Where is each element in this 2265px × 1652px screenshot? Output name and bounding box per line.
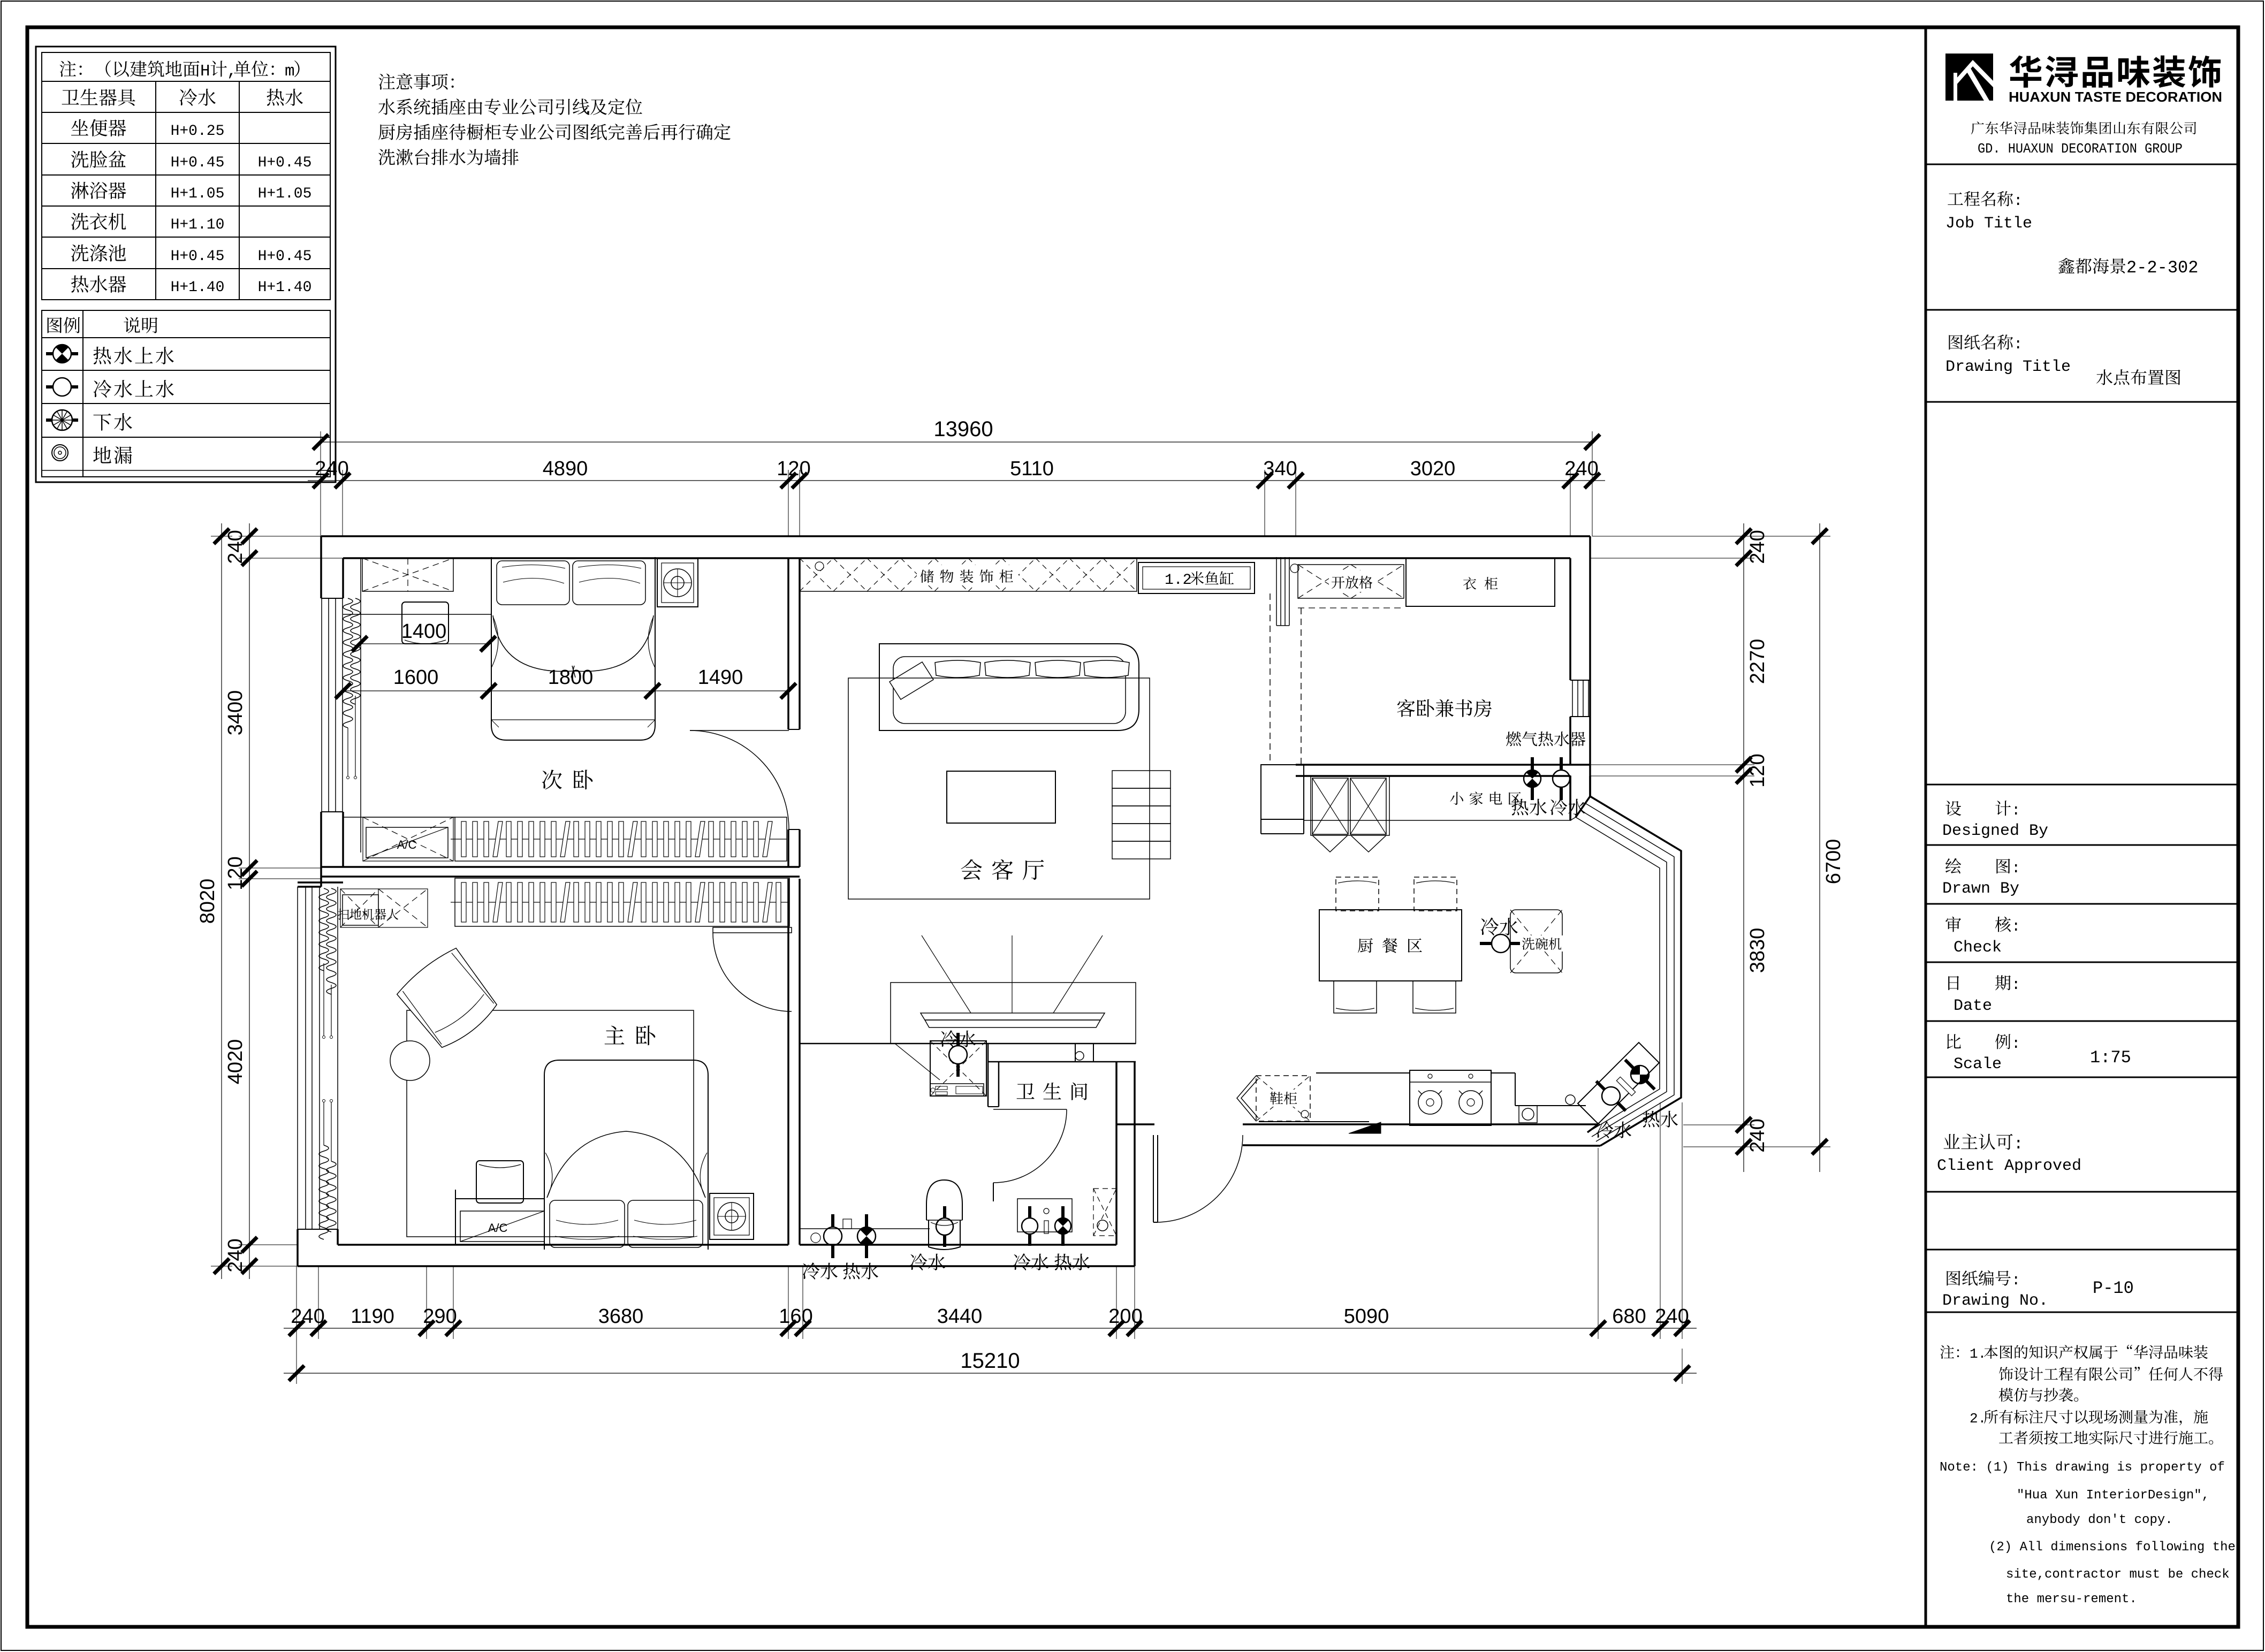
svg-text:H+0.45: H+0.45 [171,155,225,171]
svg-text:Scale: Scale [1954,1055,2002,1074]
svg-text:160: 160 [779,1305,812,1328]
svg-text:Client Approved: Client Approved [1937,1157,2081,1175]
svg-text:site,contractor must be check: site,contractor must be check [2006,1567,2230,1582]
svg-text:H+0.45: H+0.45 [258,155,312,171]
svg-text:2270: 2270 [1746,639,1769,684]
svg-text:3020: 3020 [1410,458,1456,480]
svg-text:"Hua Xun InteriorDesign",: "Hua Xun InteriorDesign", [2017,1488,2209,1503]
svg-text:1800: 1800 [548,666,594,689]
svg-text:1:75: 1:75 [2090,1048,2131,1068]
svg-text:5110: 5110 [1010,458,1054,480]
svg-text:H+0.25: H+0.25 [171,123,225,140]
svg-text:.: . [652,126,662,144]
svg-text::: : [2011,1272,2020,1289]
svg-text:Job Title: Job Title [1945,215,2032,233]
svg-text::: : [2011,859,2020,877]
svg-text:1400: 1400 [401,620,447,643]
svg-text:4020: 4020 [224,1039,247,1085]
svg-text:240: 240 [224,530,247,564]
svg-text:120: 120 [1746,753,1769,787]
svg-text:A/C: A/C [488,1221,508,1235]
svg-text::: : [2011,802,2020,819]
svg-text:15210: 15210 [960,1349,1020,1373]
svg-text:1490: 1490 [698,666,743,689]
svg-text:GD. HUAXUN DECORATION GROUP: GD. HUAXUN DECORATION GROUP [1978,141,2183,157]
svg-text:6700: 6700 [1822,839,1845,885]
svg-text:1.2: 1.2 [1165,572,1191,589]
svg-text::: : [2013,336,2023,353]
svg-text:1190: 1190 [351,1305,394,1328]
svg-text:HUAXUN TASTE DECORATION: HUAXUN TASTE DECORATION [2009,89,2222,105]
svg-text:P-10: P-10 [2093,1278,2134,1298]
svg-text:3440: 3440 [937,1305,983,1328]
svg-text::: : [2013,192,2023,210]
svg-text:5090: 5090 [1344,1305,1389,1328]
svg-text:H+1.40: H+1.40 [258,279,312,296]
svg-text:Note: (1) This drawing is pro: Note: (1) This drawing is property of [1940,1460,2225,1475]
svg-text:H+0.45: H+0.45 [171,248,225,265]
svg-text:240: 240 [291,1305,324,1328]
svg-text:240: 240 [1564,458,1598,480]
svg-text:,: , [227,62,237,81]
svg-text:anybody don't copy.: anybody don't copy. [2026,1513,2173,1527]
svg-text:680: 680 [1612,1305,1646,1328]
svg-text:Check: Check [1954,939,2002,957]
svg-text:A/C: A/C [397,838,417,851]
svg-text:Date: Date [1954,997,1992,1015]
svg-text:3680: 3680 [598,1305,644,1328]
svg-text:Drawn By: Drawn By [1942,880,2019,898]
svg-text:m: m [285,62,295,81]
svg-text:200: 200 [1108,1305,1142,1328]
svg-text::: : [2011,976,2020,994]
svg-text:2-2-302: 2-2-302 [2126,258,2198,278]
svg-text:340: 340 [1263,458,1297,480]
svg-text:H: H [200,62,210,81]
svg-text:3400: 3400 [224,690,247,736]
svg-text:H+1.40: H+1.40 [171,279,225,296]
svg-text:240: 240 [1746,530,1769,564]
svg-text:240: 240 [315,458,348,480]
svg-text:Drawing No.: Drawing No. [1942,1292,2048,1310]
svg-text::: : [2013,1135,2024,1154]
svg-text:2.: 2. [1970,1411,1986,1427]
svg-text:H+1.10: H+1.10 [171,217,225,233]
svg-text:240: 240 [224,1238,247,1272]
svg-text:(2) All dimensions following t: (2) All dimensions following the [1989,1540,2236,1555]
svg-text:H+0.45: H+0.45 [258,248,312,265]
svg-text:290: 290 [423,1305,457,1328]
svg-text:1.: 1. [1970,1346,1986,1362]
svg-text:H+1.05: H+1.05 [258,186,312,202]
svg-text:H+1.05: H+1.05 [171,186,225,202]
svg-text::: : [2011,918,2020,935]
svg-text:3830: 3830 [1746,928,1769,973]
svg-text:4890: 4890 [543,458,588,480]
svg-text:120: 120 [777,458,810,480]
svg-text:8020: 8020 [196,879,219,924]
svg-text:Designed By: Designed By [1942,822,2048,840]
svg-text:Drawing Title: Drawing Title [1945,358,2071,376]
svg-text:.: . [583,101,593,119]
svg-text::: : [2011,1035,2020,1053]
svg-text:240: 240 [1746,1118,1769,1152]
svg-text:120: 120 [224,856,247,890]
svg-text:1600: 1600 [393,666,439,689]
svg-text:the mersu-rement.: the mersu-rement. [2006,1592,2137,1607]
svg-text:13960: 13960 [933,417,993,441]
